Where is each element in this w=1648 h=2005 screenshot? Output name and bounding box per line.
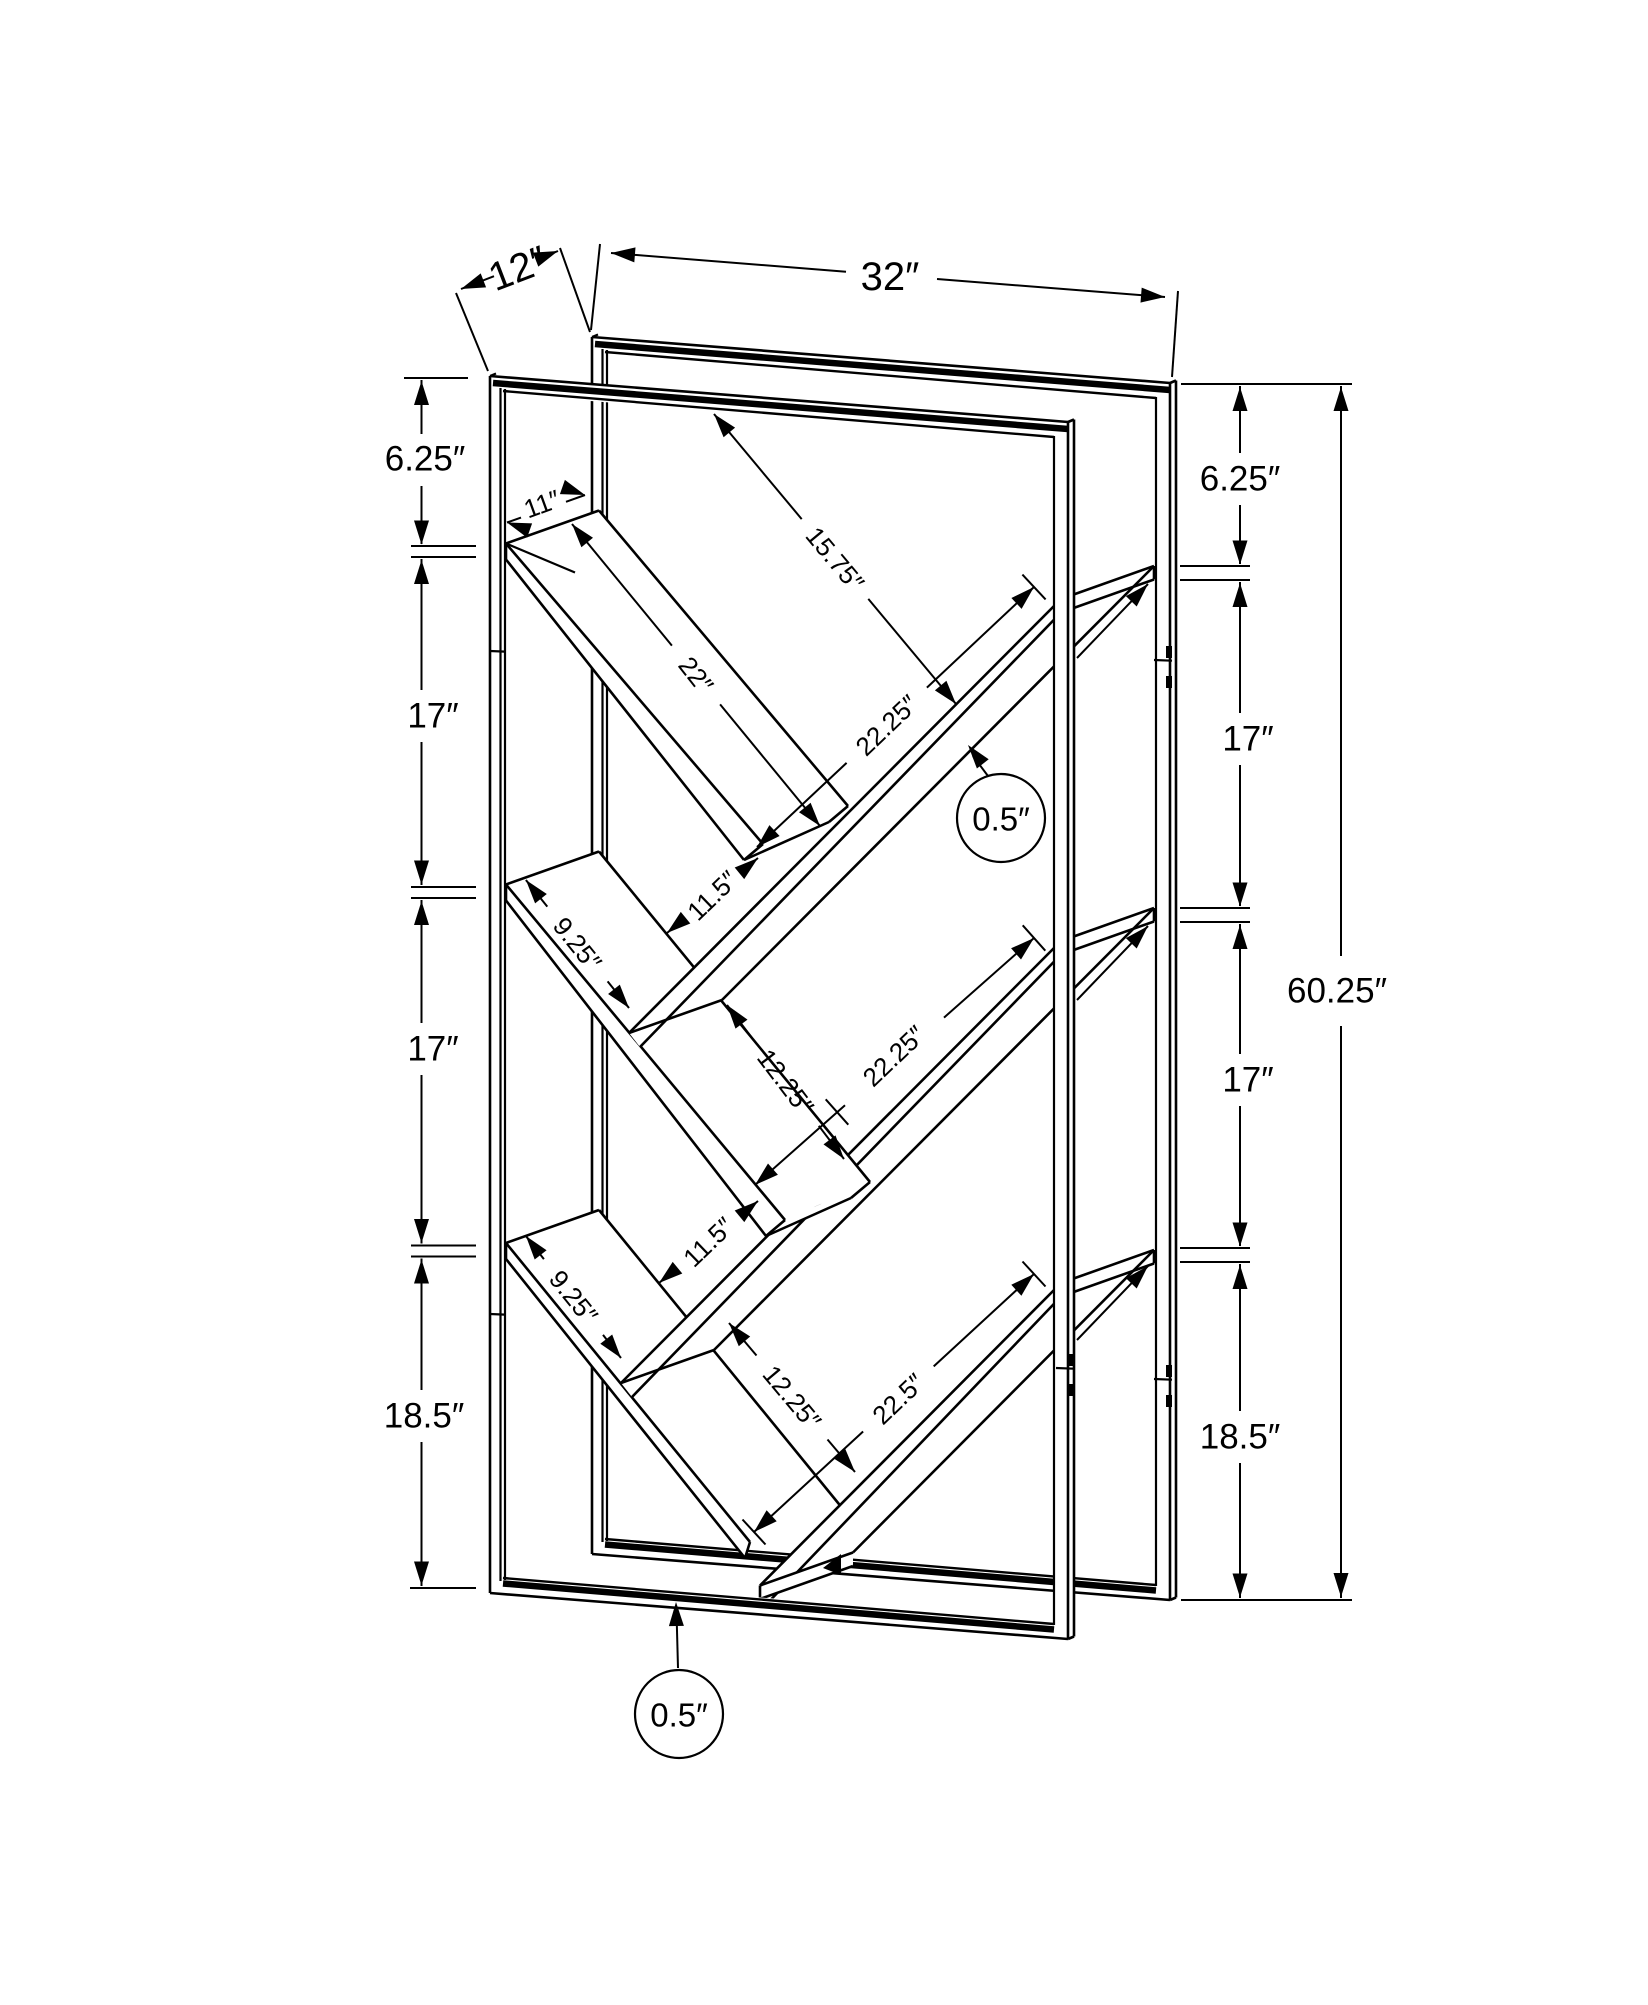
svg-text:60.25″: 60.25″ bbox=[1287, 972, 1387, 1011]
svg-text:6.25″: 6.25″ bbox=[385, 440, 466, 479]
svg-text:6.25″: 6.25″ bbox=[1200, 460, 1281, 499]
svg-text:18.5″: 18.5″ bbox=[384, 1397, 465, 1436]
svg-text:0.5″: 0.5″ bbox=[650, 1697, 708, 1734]
svg-text:0.5″: 0.5″ bbox=[972, 801, 1030, 838]
svg-text:18.5″: 18.5″ bbox=[1200, 1418, 1281, 1457]
svg-text:17″: 17″ bbox=[407, 1030, 458, 1069]
svg-text:32″: 32″ bbox=[861, 255, 920, 299]
svg-text:17″: 17″ bbox=[1222, 720, 1273, 759]
svg-text:17″: 17″ bbox=[1222, 1061, 1273, 1100]
svg-text:17″: 17″ bbox=[407, 697, 458, 736]
